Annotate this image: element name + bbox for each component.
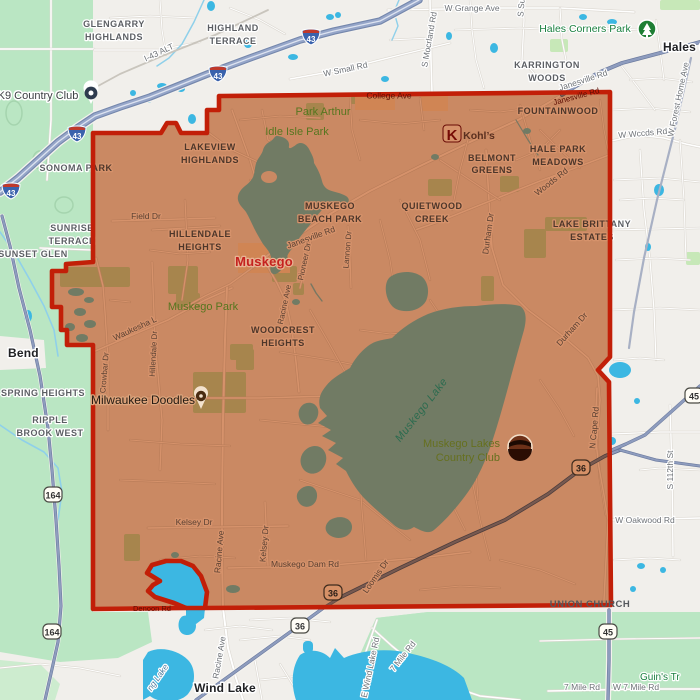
- svg-text:Denoon Rd: Denoon Rd: [133, 604, 171, 613]
- svg-text:Bend: Bend: [8, 346, 39, 360]
- svg-text:KARRINGTON: KARRINGTON: [514, 60, 580, 70]
- svg-text:Idle Isle Park: Idle Isle Park: [265, 126, 329, 138]
- svg-text:164: 164: [44, 628, 59, 638]
- svg-text:45: 45: [603, 628, 613, 638]
- svg-text:Country Club: Country Club: [436, 452, 500, 464]
- svg-text:K9 Country Club: K9 Country Club: [0, 90, 78, 102]
- svg-text:36: 36: [295, 622, 305, 632]
- svg-text:164: 164: [45, 491, 60, 501]
- svg-text:HIGHLAND: HIGHLAND: [207, 23, 259, 33]
- svg-text:College Ave: College Ave: [366, 91, 411, 101]
- svg-text:43: 43: [214, 72, 223, 81]
- svg-text:S Su: S Su: [515, 0, 527, 17]
- svg-text:Muskego Park: Muskego Park: [168, 301, 239, 313]
- svg-text:BROOK WEST: BROOK WEST: [17, 428, 84, 438]
- svg-text:HIGHLANDS: HIGHLANDS: [85, 32, 143, 42]
- svg-text:SUNSET GLEN: SUNSET GLEN: [0, 249, 68, 259]
- svg-text:Milwaukee Doodles: Milwaukee Doodles: [91, 393, 195, 407]
- svg-text:Hales Corners Park: Hales Corners Park: [539, 23, 631, 35]
- svg-text:UNION CHURCH: UNION CHURCH: [550, 599, 630, 610]
- svg-text:RIPPLE: RIPPLE: [32, 415, 68, 425]
- svg-text:SUNRISE: SUNRISE: [50, 223, 94, 233]
- svg-text:43: 43: [73, 132, 82, 141]
- svg-text:TERRACE: TERRACE: [48, 236, 95, 246]
- svg-text:7 Mile Rd: 7 Mile Rd: [564, 682, 600, 692]
- svg-text:43: 43: [307, 35, 316, 44]
- svg-text:W 7 Mile Rd: W 7 Mile Rd: [613, 682, 660, 692]
- svg-text:GLENGARRY: GLENGARRY: [83, 19, 145, 29]
- svg-text:Muskego Lakes: Muskego Lakes: [423, 438, 501, 450]
- svg-text:TERRACE: TERRACE: [209, 36, 256, 46]
- svg-text:Park Arthur: Park Arthur: [295, 106, 350, 118]
- svg-text:Wind Lake: Wind Lake: [194, 681, 256, 695]
- svg-text:SPRING HEIGHTS: SPRING HEIGHTS: [1, 388, 85, 398]
- svg-text:Muskego: Muskego: [235, 254, 293, 269]
- svg-text:W Oakwood Rd: W Oakwood Rd: [615, 515, 675, 525]
- svg-text:43: 43: [7, 189, 16, 198]
- svg-text:Hales Cor: Hales Cor: [663, 40, 700, 54]
- svg-text:S 112th St: S 112th St: [665, 450, 675, 490]
- svg-text:W Grange Ave: W Grange Ave: [444, 3, 499, 13]
- svg-text:45: 45: [689, 392, 699, 402]
